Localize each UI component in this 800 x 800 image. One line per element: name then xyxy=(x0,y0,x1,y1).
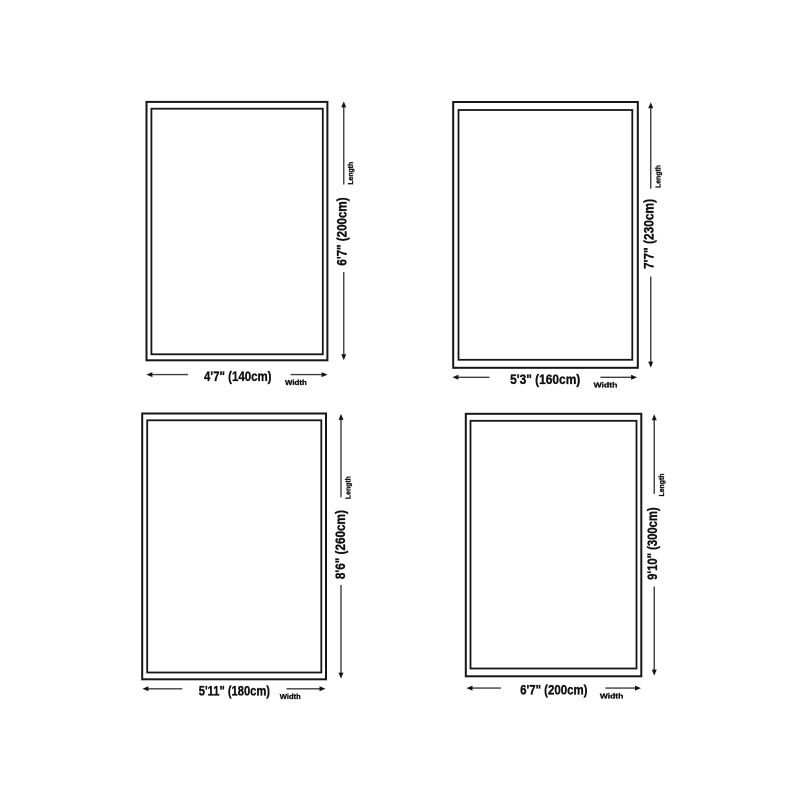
svg-text:Length: Length xyxy=(344,476,353,499)
svg-text:9'10" (300cm): 9'10" (300cm) xyxy=(645,507,660,580)
svg-text:Length: Length xyxy=(346,162,355,185)
svg-text:Width: Width xyxy=(280,692,301,701)
svg-text:Width: Width xyxy=(594,381,618,390)
svg-text:6'7" (200cm): 6'7" (200cm) xyxy=(520,683,587,698)
svg-text:Length: Length xyxy=(653,165,662,188)
svg-text:6'7" (200cm): 6'7" (200cm) xyxy=(334,197,349,265)
svg-text:8'6" (260cm): 8'6" (260cm) xyxy=(333,510,348,579)
svg-text:Length: Length xyxy=(657,474,666,497)
svg-text:7'7" (230cm): 7'7" (230cm) xyxy=(641,199,656,269)
svg-text:4'7" (140cm): 4'7" (140cm) xyxy=(204,369,272,384)
svg-text:Width: Width xyxy=(600,692,623,701)
svg-text:Width: Width xyxy=(285,378,307,387)
svg-text:5'3" (160cm): 5'3" (160cm) xyxy=(510,372,580,387)
svg-text:5'11" (180cm): 5'11" (180cm) xyxy=(199,683,270,698)
